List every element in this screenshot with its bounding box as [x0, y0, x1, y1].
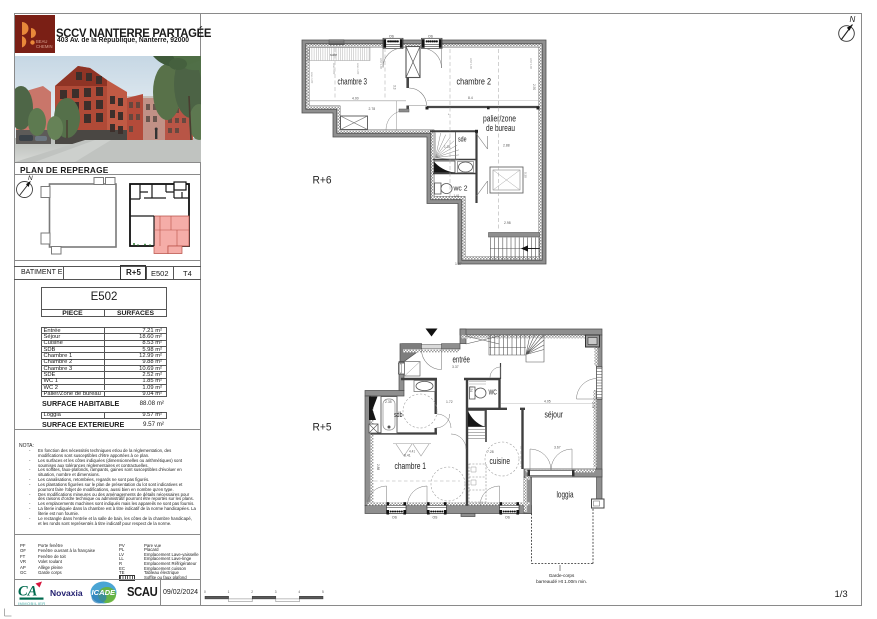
svg-text:suite: suite — [330, 53, 337, 57]
svg-text:8.4: 8.4 — [468, 96, 473, 100]
svg-text:1.87: 1.87 — [455, 262, 462, 266]
svg-text:sous 1.80: sous 1.80 — [356, 63, 360, 75]
svg-text:barreaudé Ht 1.00m min.: barreaudé Ht 1.00m min. — [536, 579, 587, 584]
svg-text:sde: sde — [458, 137, 467, 144]
svg-text:2.35: 2.35 — [385, 400, 392, 404]
svg-text:entrée: entrée — [453, 355, 471, 365]
svg-text:1.72: 1.72 — [446, 400, 453, 404]
svg-text:HSP 1.80: HSP 1.80 — [379, 58, 383, 70]
svg-text:4.05: 4.05 — [544, 399, 551, 403]
svg-text:1.61: 1.61 — [454, 194, 460, 198]
svg-text:2.78: 2.78 — [591, 402, 595, 408]
svg-text:séjour: séjour — [545, 410, 564, 420]
svg-text:sous 1.80: sous 1.80 — [310, 72, 314, 84]
svg-text:2: 2 — [251, 590, 253, 594]
svg-text:2.88: 2.88 — [503, 144, 510, 148]
svg-text:WC: WC — [489, 390, 498, 397]
svg-text:loggia: loggia — [557, 490, 574, 500]
svg-text:OS: OS — [392, 516, 398, 520]
svg-text:2.78: 2.78 — [369, 107, 376, 111]
svg-text:4.00: 4.00 — [352, 97, 359, 101]
svg-text:R+5: R+5 — [313, 422, 332, 434]
svg-text:chambre 2: chambre 2 — [457, 77, 492, 87]
svg-text:5: 5 — [322, 590, 324, 594]
svg-text:R+6: R+6 — [313, 175, 332, 187]
svg-text:de bureau: de bureau — [486, 123, 515, 133]
svg-text:2.88: 2.88 — [376, 464, 380, 470]
svg-text:OS: OS — [389, 35, 395, 39]
svg-text:sous 1.80: sous 1.80 — [332, 63, 336, 75]
svg-text:1.25: 1.25 — [444, 145, 450, 149]
svg-text:chambre 3: chambre 3 — [338, 77, 368, 87]
svg-text:8.41: 8.41 — [404, 454, 411, 458]
svg-text:palier/zone: palier/zone — [483, 114, 516, 124]
svg-text:3.67: 3.67 — [554, 446, 561, 450]
svg-text:1.54: 1.54 — [469, 386, 473, 392]
svg-text:sdb: sdb — [394, 412, 403, 419]
svg-text:1: 1 — [228, 590, 230, 594]
svg-text:wc 2: wc 2 — [453, 186, 468, 193]
svg-text:OS: OS — [505, 516, 511, 520]
svg-text:OS: OS — [433, 516, 439, 520]
svg-text:0: 0 — [204, 590, 206, 594]
svg-text:cuisine: cuisine — [490, 456, 511, 466]
svg-text:2.50: 2.50 — [532, 84, 536, 90]
svg-text:3.37: 3.37 — [452, 365, 459, 369]
svg-text:4: 4 — [298, 590, 300, 594]
svg-text:3.3: 3.3 — [393, 85, 397, 90]
svg-text:HSP 1.80: HSP 1.80 — [469, 58, 473, 70]
svg-text:chambre 1: chambre 1 — [395, 461, 427, 471]
svg-text:0.30: 0.30 — [524, 172, 528, 178]
svg-text:N: N — [850, 15, 856, 24]
svg-text:*: * — [448, 113, 450, 117]
svg-text:3: 3 — [275, 590, 277, 594]
svg-text:7.28: 7.28 — [487, 450, 494, 454]
svg-text:HSP 1.80: HSP 1.80 — [529, 58, 533, 70]
svg-text:Garde-corps: Garde-corps — [549, 573, 575, 578]
svg-text:2.98: 2.98 — [504, 221, 511, 225]
svg-text:OS: OS — [428, 35, 434, 39]
